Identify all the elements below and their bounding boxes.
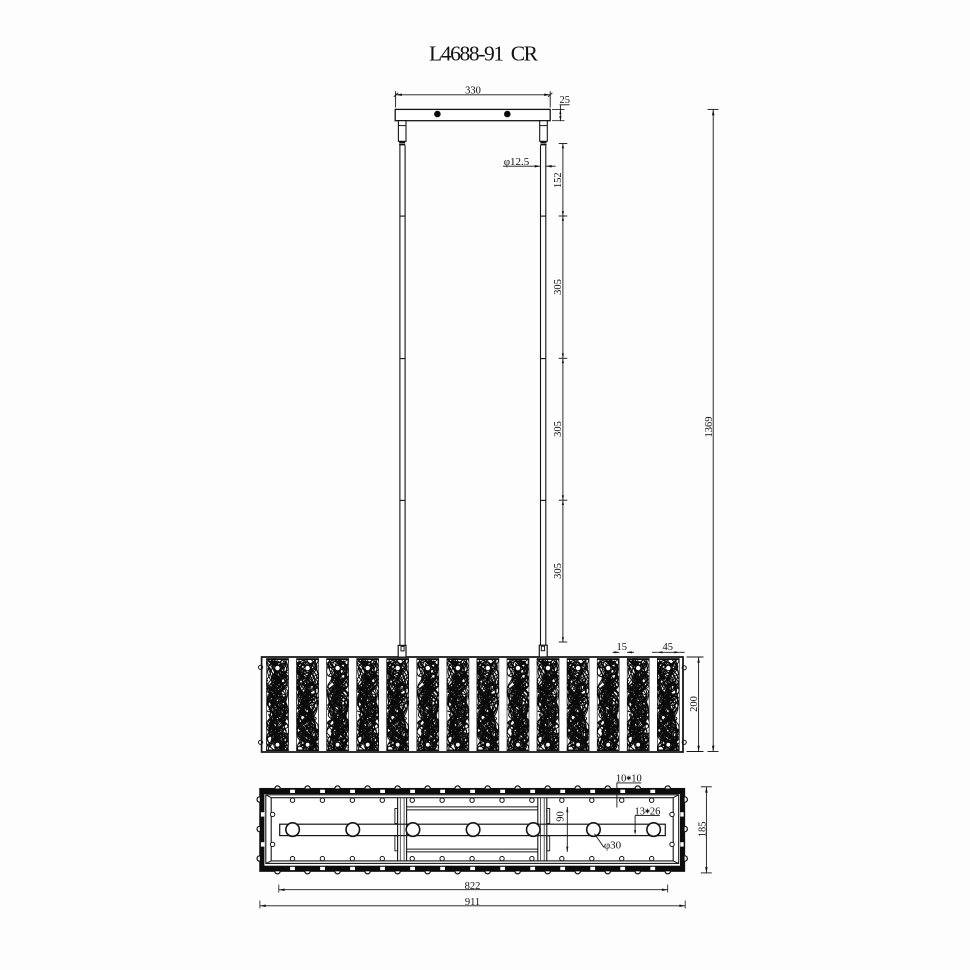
svg-text:90: 90	[556, 811, 567, 822]
svg-text:25: 25	[560, 95, 571, 106]
svg-text:L4688-91 CR: L4688-91 CR	[429, 42, 539, 66]
svg-text:305: 305	[553, 421, 564, 437]
svg-text:152: 152	[553, 172, 564, 188]
svg-text:200: 200	[689, 696, 700, 712]
svg-text:15: 15	[617, 642, 628, 653]
svg-text:911: 911	[465, 897, 480, 908]
svg-text:822: 822	[465, 881, 481, 892]
svg-text:330: 330	[465, 86, 481, 97]
svg-text:φ30: φ30	[604, 840, 622, 852]
svg-text:φ12.5: φ12.5	[504, 156, 530, 168]
svg-text:305: 305	[553, 563, 564, 579]
svg-text:305: 305	[553, 279, 564, 295]
svg-text:185: 185	[697, 822, 708, 838]
svg-text:1369: 1369	[704, 417, 715, 438]
svg-text:45: 45	[663, 642, 674, 653]
